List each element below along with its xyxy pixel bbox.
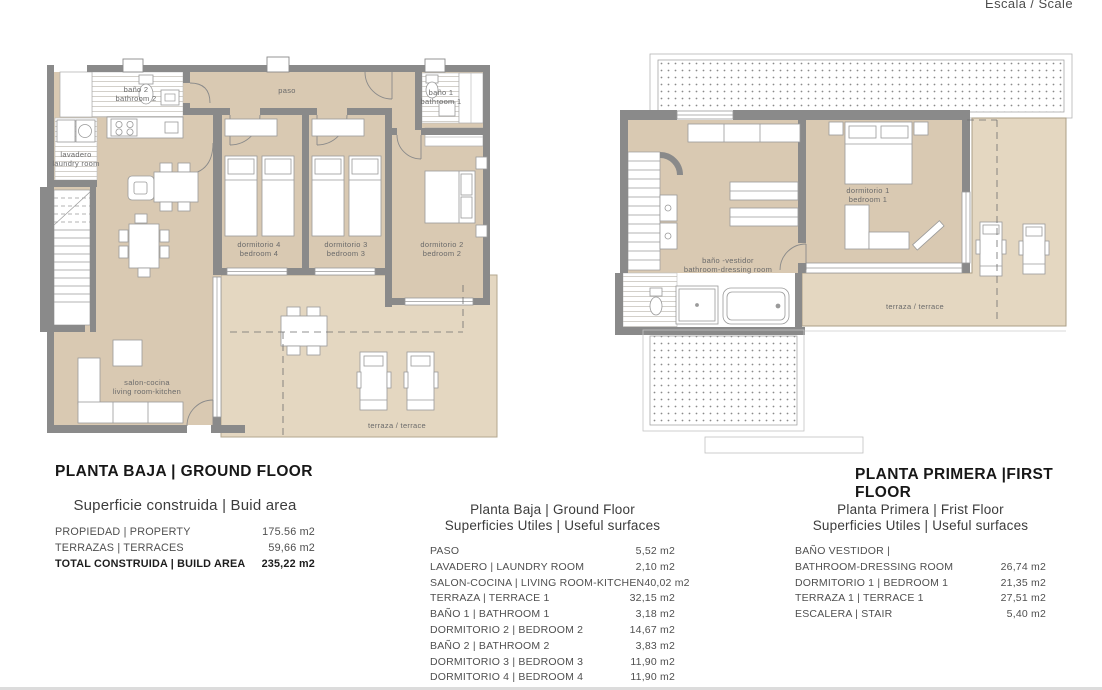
sofa-icon: [78, 358, 100, 404]
coffee-table-icon: [113, 340, 142, 366]
room-label: salon-cocina: [124, 378, 170, 387]
table-row: DORMITORIO 1 | BEDROOM 1 21,35 m2: [795, 576, 1046, 592]
ground-floor-title: PLANTA BAJA | GROUND FLOOR: [55, 463, 313, 481]
room-label: bedroom 4: [240, 249, 279, 258]
table-subtitle: Superficies Utiles | Useful surfaces: [430, 518, 675, 534]
ground-floor-plan-drawing: baño 2 bathroom 2 lavadero laundry room …: [35, 40, 510, 440]
room-label: terraza / terrace: [886, 302, 944, 311]
room-label: bedroom 1: [849, 195, 888, 204]
row-value: 175.56 m2: [262, 524, 315, 540]
table-row: DORMITORIO 2 | BEDROOM 2 14,67 m2: [430, 623, 675, 639]
table-row: BAÑO VESTIDOR |: [795, 544, 1046, 560]
table-title: Superficie construida | Buid area: [55, 498, 315, 514]
table-row: SALON-COCINA | LIVING ROOM-KITCHEN 40,02…: [430, 576, 675, 592]
gf-bathroom1: [422, 73, 483, 146]
row-value: 11,90 m2: [630, 670, 675, 686]
first-floor-plan: baño -vestidor bathroom-dressing room do…: [610, 40, 1080, 465]
ground-floor-plan: baño 2 bathroom 2 lavadero laundry room …: [35, 40, 510, 445]
gf-stairs: [54, 190, 90, 325]
row-label: TOTAL CONSTRUIDA | BUILD AREA: [55, 556, 245, 572]
room-label: baño 2: [124, 85, 149, 94]
outdoor-table-icon: [281, 316, 327, 346]
room-label: paso: [278, 86, 295, 95]
toilet-icon: [139, 75, 153, 84]
build-area-table: Superficie construida | Buid area PROPIE…: [55, 498, 315, 573]
row-label: SALON-COCINA | LIVING ROOM-KITCHEN: [430, 576, 644, 592]
room-label: bathroom 1: [421, 97, 462, 106]
row-label: PASO: [430, 544, 459, 560]
ff-pergola: [650, 54, 1072, 118]
ff-roof-area: [643, 330, 863, 453]
ground-useful-table: Planta Baja | Ground Floor Superficies U…: [430, 502, 675, 686]
room-label: laundry room: [52, 159, 99, 168]
row-value: 40,02 m2: [644, 576, 689, 592]
table-title: Planta Baja | Ground Floor: [430, 502, 675, 518]
room-label: terraza / terrace: [368, 421, 426, 430]
wardrobe-icon: [688, 124, 800, 142]
row-label: DORMITORIO 2 | BEDROOM 2: [430, 623, 583, 639]
room-label: baño -vestidor: [702, 256, 754, 265]
row-value: 21,35 m2: [1001, 576, 1046, 592]
table-title: Planta Primera | Frist Floor: [795, 502, 1046, 518]
room-label: dormitorio 1: [846, 186, 889, 195]
footprint-outline: [705, 437, 863, 453]
dining-table-icon: [129, 224, 159, 268]
row-label: TERRAZA 1 | TERRACE 1: [795, 591, 924, 607]
room-label: bedroom 3: [327, 249, 366, 258]
row-value: 235,22 m2: [262, 556, 315, 572]
row-label: DORMITORIO 1 | BEDROOM 1: [795, 576, 948, 592]
table-row: DORMITORIO 4 | BEDROOM 4 11,90 m2: [430, 670, 675, 686]
row-label: DORMITORIO 4 | BEDROOM 4: [430, 670, 583, 686]
table-row: PASO 5,52 m2: [430, 544, 675, 560]
row-value: 3,18 m2: [636, 607, 675, 623]
ff-wc-floor: [623, 273, 677, 327]
table-subtitle: Superficies Utiles | Useful surfaces: [795, 518, 1046, 534]
row-label: LAVADERO | LAUNDRY ROOM: [430, 560, 584, 576]
table-row: TERRAZA 1 | TERRACE 1 27,51 m2: [795, 591, 1046, 607]
row-label: ESCALERA | STAIR: [795, 607, 892, 623]
room-label: bathroom-dressing room: [684, 265, 772, 274]
row-value: 14,67 m2: [630, 623, 675, 639]
table-row: PROPIEDAD | PROPERTY 175.56 m2: [55, 524, 315, 540]
sink-icon: [165, 122, 178, 133]
table-row: TERRAZA | TERRACE 1 32,15 m2: [430, 591, 675, 607]
room-label: bedroom 2: [423, 249, 462, 258]
row-value: 59,66 m2: [268, 540, 315, 556]
room-label: dormitorio 4: [237, 240, 280, 249]
room-label: lavadero: [60, 150, 91, 159]
row-label: BAÑO 2 | BATHROOM 2: [430, 639, 550, 655]
row-value: 3,83 m2: [636, 639, 675, 655]
row-value: 27,51 m2: [1001, 591, 1046, 607]
room-label: bathroom 2: [116, 94, 157, 103]
room-label: baño 1: [429, 88, 454, 97]
row-value: 26,74 m2: [1001, 560, 1046, 576]
table-row: LAVADERO | LAUNDRY ROOM 2,10 m2: [430, 560, 675, 576]
row-value: 5,40 m2: [1007, 607, 1046, 623]
room-label: dormitorio 2: [420, 240, 463, 249]
row-label: BAÑO VESTIDOR |: [795, 544, 890, 560]
table-row: DORMITORIO 3 | BEDROOM 3 11,90 m2: [430, 655, 675, 671]
row-label: PROPIEDAD | PROPERTY: [55, 524, 191, 540]
table-row: BAÑO 2 | BATHROOM 2 3,83 m2: [430, 639, 675, 655]
row-label: BAÑO 1 | BATHROOM 1: [430, 607, 550, 623]
row-value: 32,15 m2: [630, 591, 675, 607]
table-icon: [154, 172, 198, 202]
first-useful-table: Planta Primera | Frist Floor Superficies…: [795, 502, 1046, 623]
room-label: dormitorio 3: [324, 240, 367, 249]
table-row: BAÑO 1 | BATHROOM 1 3,18 m2: [430, 607, 675, 623]
row-value: 11,90 m2: [630, 655, 675, 671]
room-label: living room-kitchen: [113, 387, 181, 396]
row-label: BATHROOM-DRESSING ROOM: [795, 560, 953, 576]
table-row: ESCALERA | STAIR 5,40 m2: [795, 607, 1046, 623]
first-floor-title: PLANTA PRIMERA |FIRST FLOOR: [855, 466, 1102, 502]
table-row: TERRAZAS | TERRACES 59,66 m2: [55, 540, 315, 556]
row-label: TERRAZAS | TERRACES: [55, 540, 184, 556]
row-label: TERRAZA | TERRACE 1: [430, 591, 550, 607]
table-row: TOTAL CONSTRUIDA | BUILD AREA 235,22 m2: [55, 556, 315, 572]
gf-laundry: [55, 118, 97, 180]
row-label: DORMITORIO 3 | BEDROOM 3: [430, 655, 583, 671]
table-row: BATHROOM-DRESSING ROOM 26,74 m2: [795, 560, 1046, 576]
scale-note: Escala / Scale: [985, 0, 1073, 11]
toilet-icon: [650, 288, 662, 296]
row-value: 5,52 m2: [636, 544, 675, 560]
row-value: 2,10 m2: [636, 560, 675, 576]
furniture-icon: [845, 205, 869, 249]
first-floor-plan-drawing: baño -vestidor bathroom-dressing room do…: [610, 40, 1080, 460]
